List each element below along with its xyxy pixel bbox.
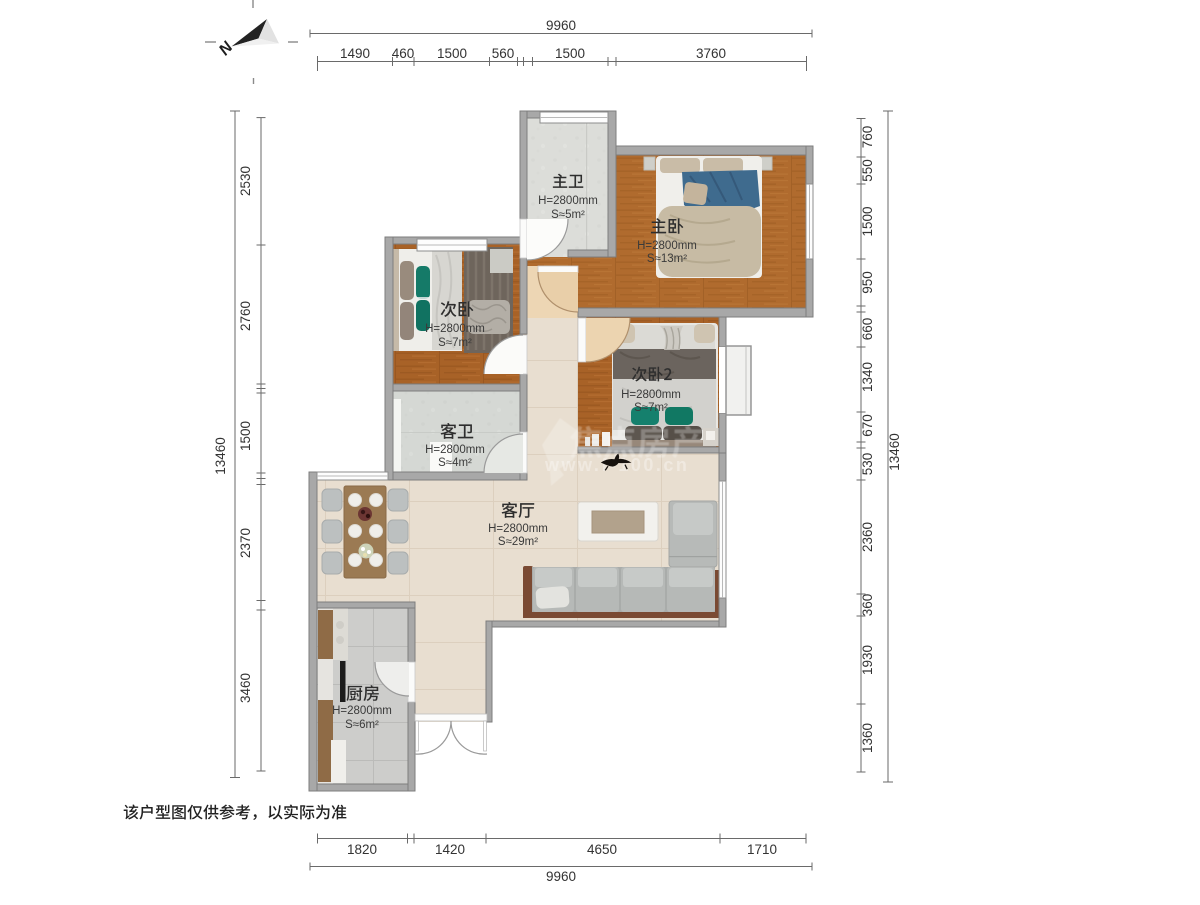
- svg-text:3460: 3460: [238, 673, 253, 703]
- svg-text:S≈6m²: S≈6m²: [345, 719, 379, 731]
- svg-text:560: 560: [492, 46, 515, 61]
- svg-text:3760: 3760: [696, 46, 726, 61]
- svg-text:1490: 1490: [340, 46, 370, 61]
- svg-text:13460: 13460: [213, 437, 228, 475]
- svg-text:1500: 1500: [860, 206, 875, 236]
- svg-text:H=2800mm: H=2800mm: [538, 195, 598, 207]
- svg-text:2360: 2360: [860, 522, 875, 552]
- svg-text:9960: 9960: [546, 18, 576, 33]
- svg-text:13460: 13460: [887, 433, 902, 471]
- svg-text:H=2800mm: H=2800mm: [621, 389, 681, 401]
- svg-text:2370: 2370: [238, 528, 253, 558]
- svg-text:660: 660: [860, 318, 875, 341]
- svg-text:760: 760: [860, 126, 875, 149]
- svg-text:4650: 4650: [587, 842, 617, 857]
- svg-text:2760: 2760: [238, 301, 253, 331]
- svg-text:H=2800mm: H=2800mm: [425, 323, 485, 335]
- svg-text:1820: 1820: [347, 842, 377, 857]
- svg-text:1360: 1360: [860, 723, 875, 753]
- svg-text:1500: 1500: [437, 46, 467, 61]
- svg-text:S≈7m²: S≈7m²: [634, 402, 668, 414]
- svg-text:H=2800mm: H=2800mm: [488, 523, 548, 535]
- svg-text:S≈29m²: S≈29m²: [498, 536, 538, 548]
- svg-text:550: 550: [860, 159, 875, 182]
- svg-text:H=2800mm: H=2800mm: [425, 444, 485, 456]
- svg-text:950: 950: [860, 271, 875, 294]
- svg-text:1500: 1500: [555, 46, 585, 61]
- svg-text:S≈7m²: S≈7m²: [438, 337, 472, 349]
- svg-text:670: 670: [860, 414, 875, 437]
- svg-text:S≈4m²: S≈4m²: [438, 457, 472, 469]
- svg-text:H=2800mm: H=2800mm: [332, 705, 392, 717]
- svg-text:9960: 9960: [546, 869, 576, 884]
- svg-text:530: 530: [860, 453, 875, 476]
- svg-text:1930: 1930: [860, 645, 875, 675]
- svg-text:S≈5m²: S≈5m²: [551, 209, 585, 221]
- svg-text:460: 460: [392, 46, 415, 61]
- svg-text:H=2800mm: H=2800mm: [637, 240, 697, 252]
- svg-text:S≈13m²: S≈13m²: [647, 253, 687, 265]
- svg-text:1420: 1420: [435, 842, 465, 857]
- svg-text:1340: 1340: [860, 362, 875, 392]
- svg-text:360: 360: [860, 594, 875, 617]
- svg-text:1710: 1710: [747, 842, 777, 857]
- svg-text:2530: 2530: [238, 166, 253, 196]
- svg-text:1500: 1500: [238, 421, 253, 451]
